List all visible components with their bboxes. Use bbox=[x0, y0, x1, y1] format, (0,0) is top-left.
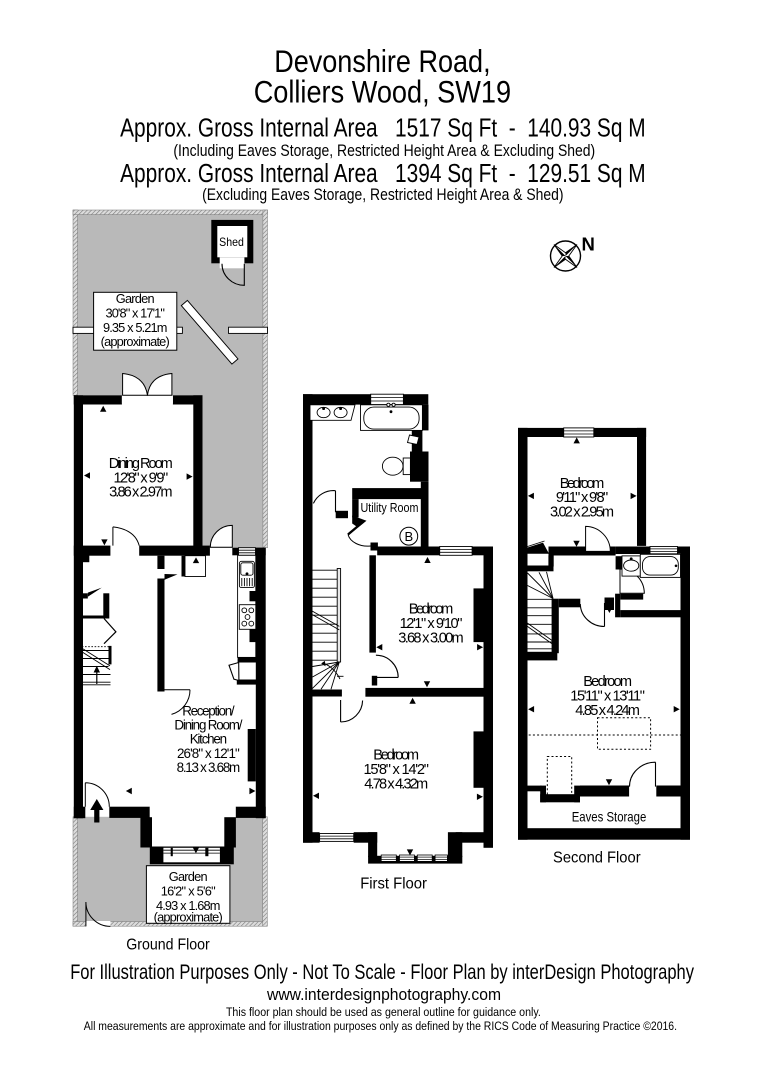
svg-text:B: B bbox=[404, 529, 413, 544]
svg-text:Second Floor: Second Floor bbox=[553, 850, 641, 867]
svg-text:4.78 x 4.32m: 4.78 x 4.32m bbox=[364, 776, 428, 792]
svg-text:This floor plan should be used: This floor plan should be used as genera… bbox=[226, 1005, 541, 1019]
svg-text:Utility Room: Utility Room bbox=[361, 501, 419, 515]
svg-text:Shed: Shed bbox=[219, 235, 244, 249]
svg-text:(approximate): (approximate) bbox=[101, 334, 170, 349]
svg-text:Garden: Garden bbox=[116, 291, 155, 306]
svg-text:First Floor: First Floor bbox=[360, 876, 427, 893]
svg-text:8.13 x 3.68m: 8.13 x 3.68m bbox=[177, 760, 241, 775]
svg-text:All measurements are approxima: All measurements are approximate and for… bbox=[84, 1019, 677, 1033]
svg-text:3.86 x 2.97m: 3.86 x 2.97m bbox=[109, 485, 172, 501]
svg-text:(approximate): (approximate) bbox=[154, 909, 223, 924]
svg-text:Reception/: Reception/ bbox=[182, 703, 235, 718]
svg-text:3.02 x 2.95m: 3.02 x 2.95m bbox=[550, 504, 614, 520]
svg-text:Eaves Storage: Eaves Storage bbox=[572, 810, 647, 825]
svg-text:16'2" x 5'6": 16'2" x 5'6" bbox=[161, 883, 216, 898]
svg-text:Approx. Gross Internal Area: Approx. Gross Internal Area 1394 Sq Ft -… bbox=[120, 160, 646, 188]
svg-text:(Including Eaves Storage, Rest: (Including Eaves Storage, Restricted Hei… bbox=[173, 141, 595, 160]
svg-text:Colliers Wood, SW19: Colliers Wood, SW19 bbox=[254, 73, 511, 109]
svg-text:Garden: Garden bbox=[169, 869, 208, 884]
svg-text:Kitchen: Kitchen bbox=[190, 732, 227, 747]
svg-text:4.85 x 4.24m: 4.85 x 4.24m bbox=[575, 703, 640, 719]
svg-text:3.68 x 3.00m: 3.68 x 3.00m bbox=[398, 630, 463, 646]
svg-text:9.35 x 5.21m: 9.35 x 5.21m bbox=[103, 320, 168, 335]
svg-text:26'8" x 12'1": 26'8" x 12'1" bbox=[177, 746, 240, 761]
svg-text:www.interdesignphotography.com: www.interdesignphotography.com bbox=[266, 985, 501, 1004]
svg-text:N: N bbox=[582, 234, 595, 255]
svg-text:Dining Room/: Dining Room/ bbox=[174, 718, 242, 733]
svg-text:For Illustration Purposes Only: For Illustration Purposes Only - Not To … bbox=[70, 960, 694, 984]
svg-text:(Excluding Eaves Storage, Rest: (Excluding Eaves Storage, Restricted Hei… bbox=[202, 185, 563, 204]
svg-text:30'8" x 17'1": 30'8" x 17'1" bbox=[106, 306, 165, 321]
svg-text:Ground Floor: Ground Floor bbox=[126, 937, 210, 954]
svg-text:Approx. Gross Internal Area: Approx. Gross Internal Area 1517 Sq Ft -… bbox=[120, 115, 646, 143]
